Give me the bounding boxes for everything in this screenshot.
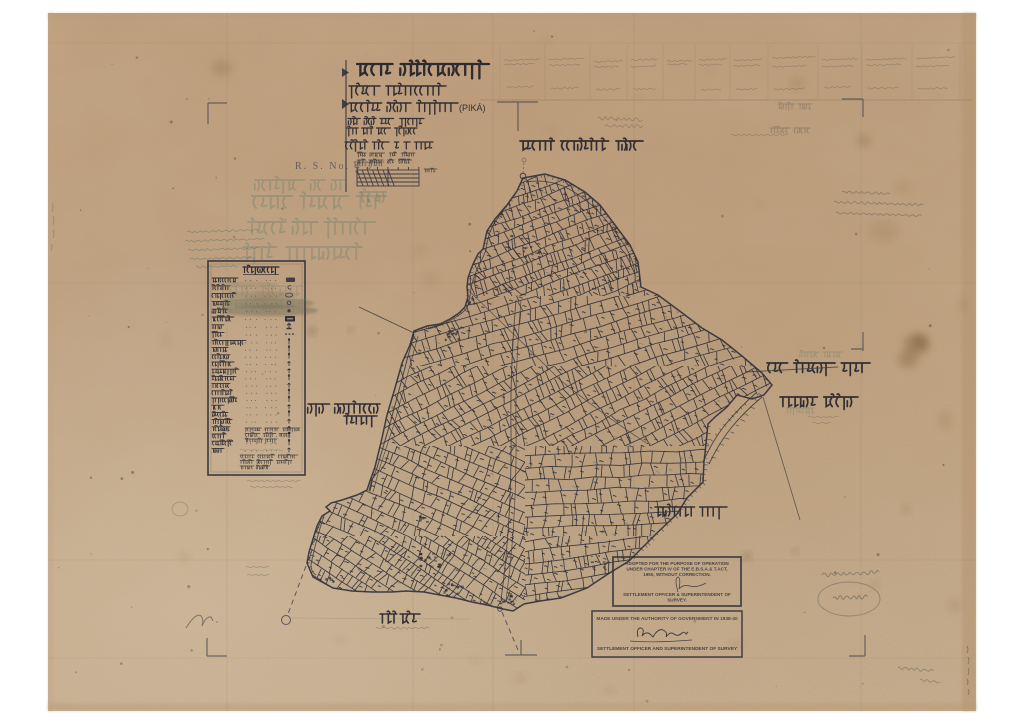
svg-text:R. S. No. 4 3: R. S. No. 4 3	[295, 161, 373, 172]
svg-text:SETTLEMENT OFFICER AND SUPERIN: SETTLEMENT OFFICER AND SUPERINTENDENT OF…	[597, 646, 738, 652]
svg-text:UNDER CHAPTER IV OF THE E.B.S.: UNDER CHAPTER IV OF THE E.B.S.A.& T.ACT,	[626, 567, 727, 572]
svg-text:1950, WITHOUT CORRECTION.: 1950, WITHOUT CORRECTION.	[643, 572, 711, 577]
svg-text:ADOPTED FOR THE PURPOSE OF OPE: ADOPTED FOR THE PURPOSE OF OPERATION	[625, 561, 729, 566]
svg-text:SETTLEMENT OFFICER & SUPERINTE: SETTLEMENT OFFICER & SUPERINTENDENT OF	[623, 592, 731, 597]
svg-text:SURVEY.: SURVEY.	[667, 598, 687, 603]
svg-text:(PIKÁ): (PIKÁ)	[459, 103, 486, 113]
svg-text:MADE UNDER THE AUTHORITY OF GO: MADE UNDER THE AUTHORITY OF GOVERNMENT I…	[596, 616, 738, 622]
